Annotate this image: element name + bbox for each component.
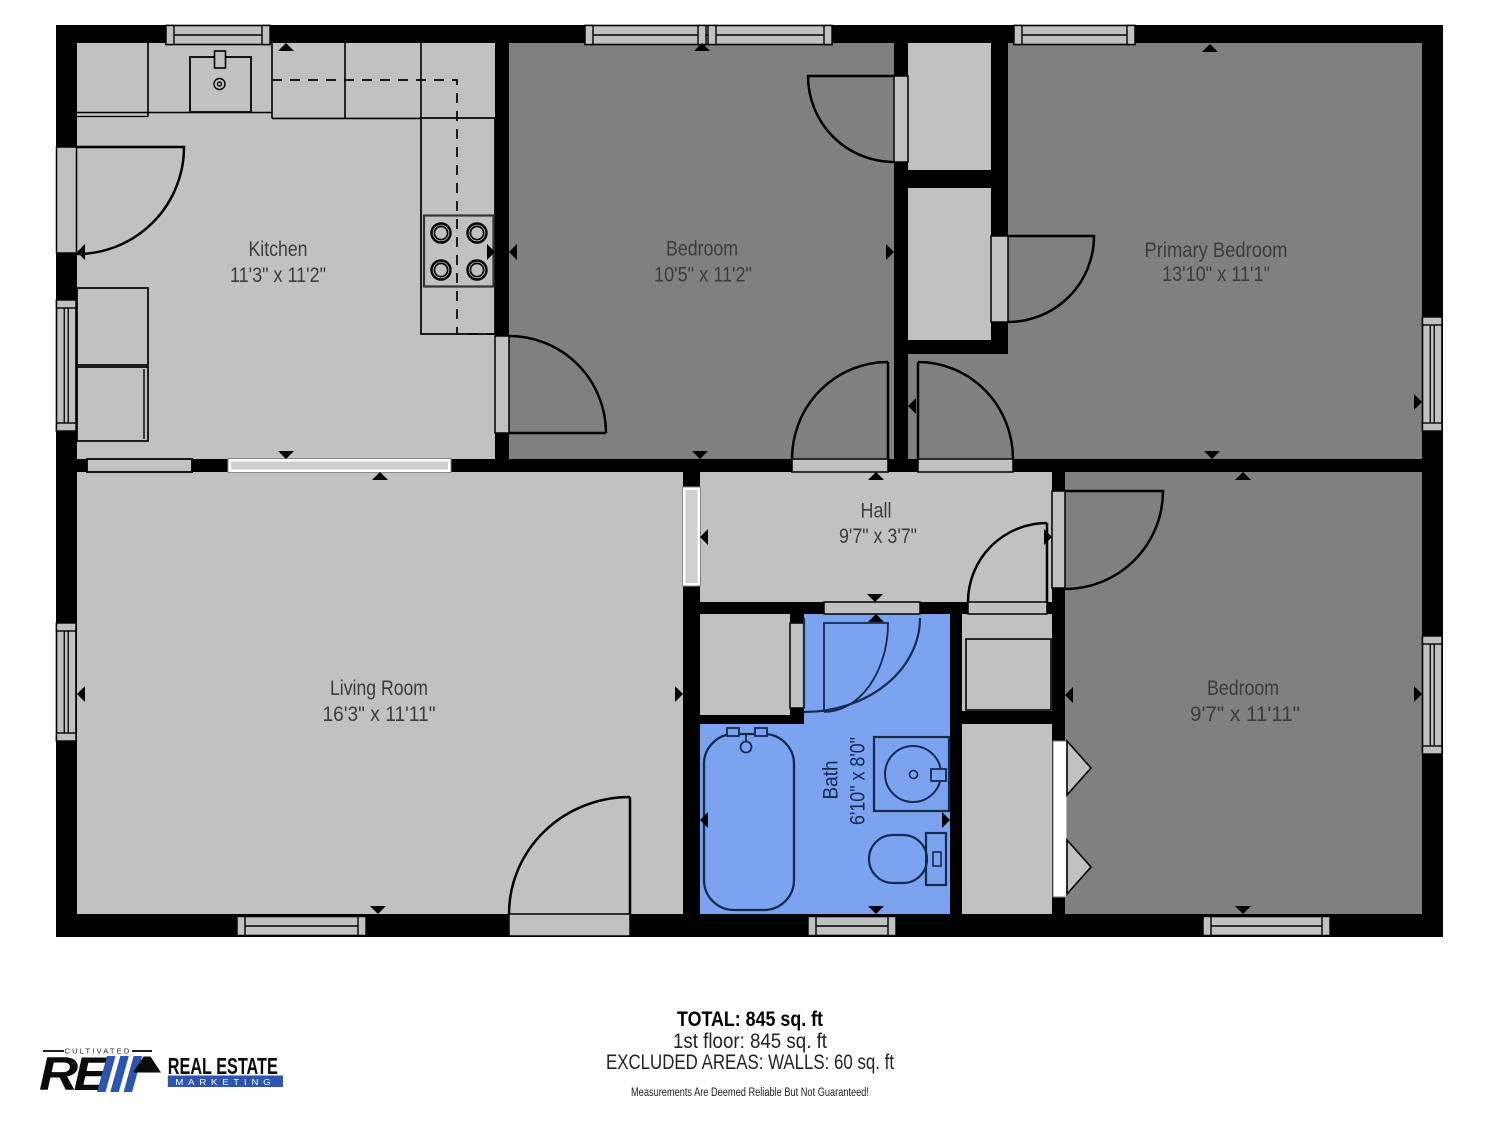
svg-text:Measurements Are Deemed Reliab: Measurements Are Deemed Reliable But Not… xyxy=(631,1087,869,1099)
svg-text:Bedroom: Bedroom xyxy=(1207,677,1279,700)
svg-text:Primary Bedroom: Primary Bedroom xyxy=(1145,239,1288,262)
svg-text:16'3" x 11'11": 16'3" x 11'11" xyxy=(323,703,436,726)
svg-text:Bedroom: Bedroom xyxy=(666,238,738,261)
svg-text:6'10" x 8'0": 6'10" x 8'0" xyxy=(847,737,870,825)
svg-text:11'3" x 11'2": 11'3" x 11'2" xyxy=(230,264,326,287)
svg-text:EXCLUDED AREAS: WALLS: 60 sq.: EXCLUDED AREAS: WALLS: 60 sq. ft xyxy=(606,1050,894,1074)
svg-text:Kitchen: Kitchen xyxy=(249,238,308,261)
svg-text:Hall: Hall xyxy=(861,500,892,523)
svg-text:Bath: Bath xyxy=(820,761,843,800)
svg-text:13'10" x 11'1": 13'10" x 11'1" xyxy=(1162,263,1270,286)
svg-text:RE: RE xyxy=(39,1047,112,1100)
svg-text:10'5" x 11'2": 10'5" x 11'2" xyxy=(654,264,752,287)
svg-text:9'7" x 3'7": 9'7" x 3'7" xyxy=(839,525,917,548)
svg-text:REAL ESTATE: REAL ESTATE xyxy=(168,1053,278,1079)
svg-text:9'7" x 11'11": 9'7" x 11'11" xyxy=(1190,703,1300,726)
svg-text:MARKETING: MARKETING xyxy=(175,1078,275,1087)
svg-text:Living Room: Living Room xyxy=(330,677,428,700)
svg-text:TOTAL: 845 sq. ft: TOTAL: 845 sq. ft xyxy=(677,1007,823,1031)
